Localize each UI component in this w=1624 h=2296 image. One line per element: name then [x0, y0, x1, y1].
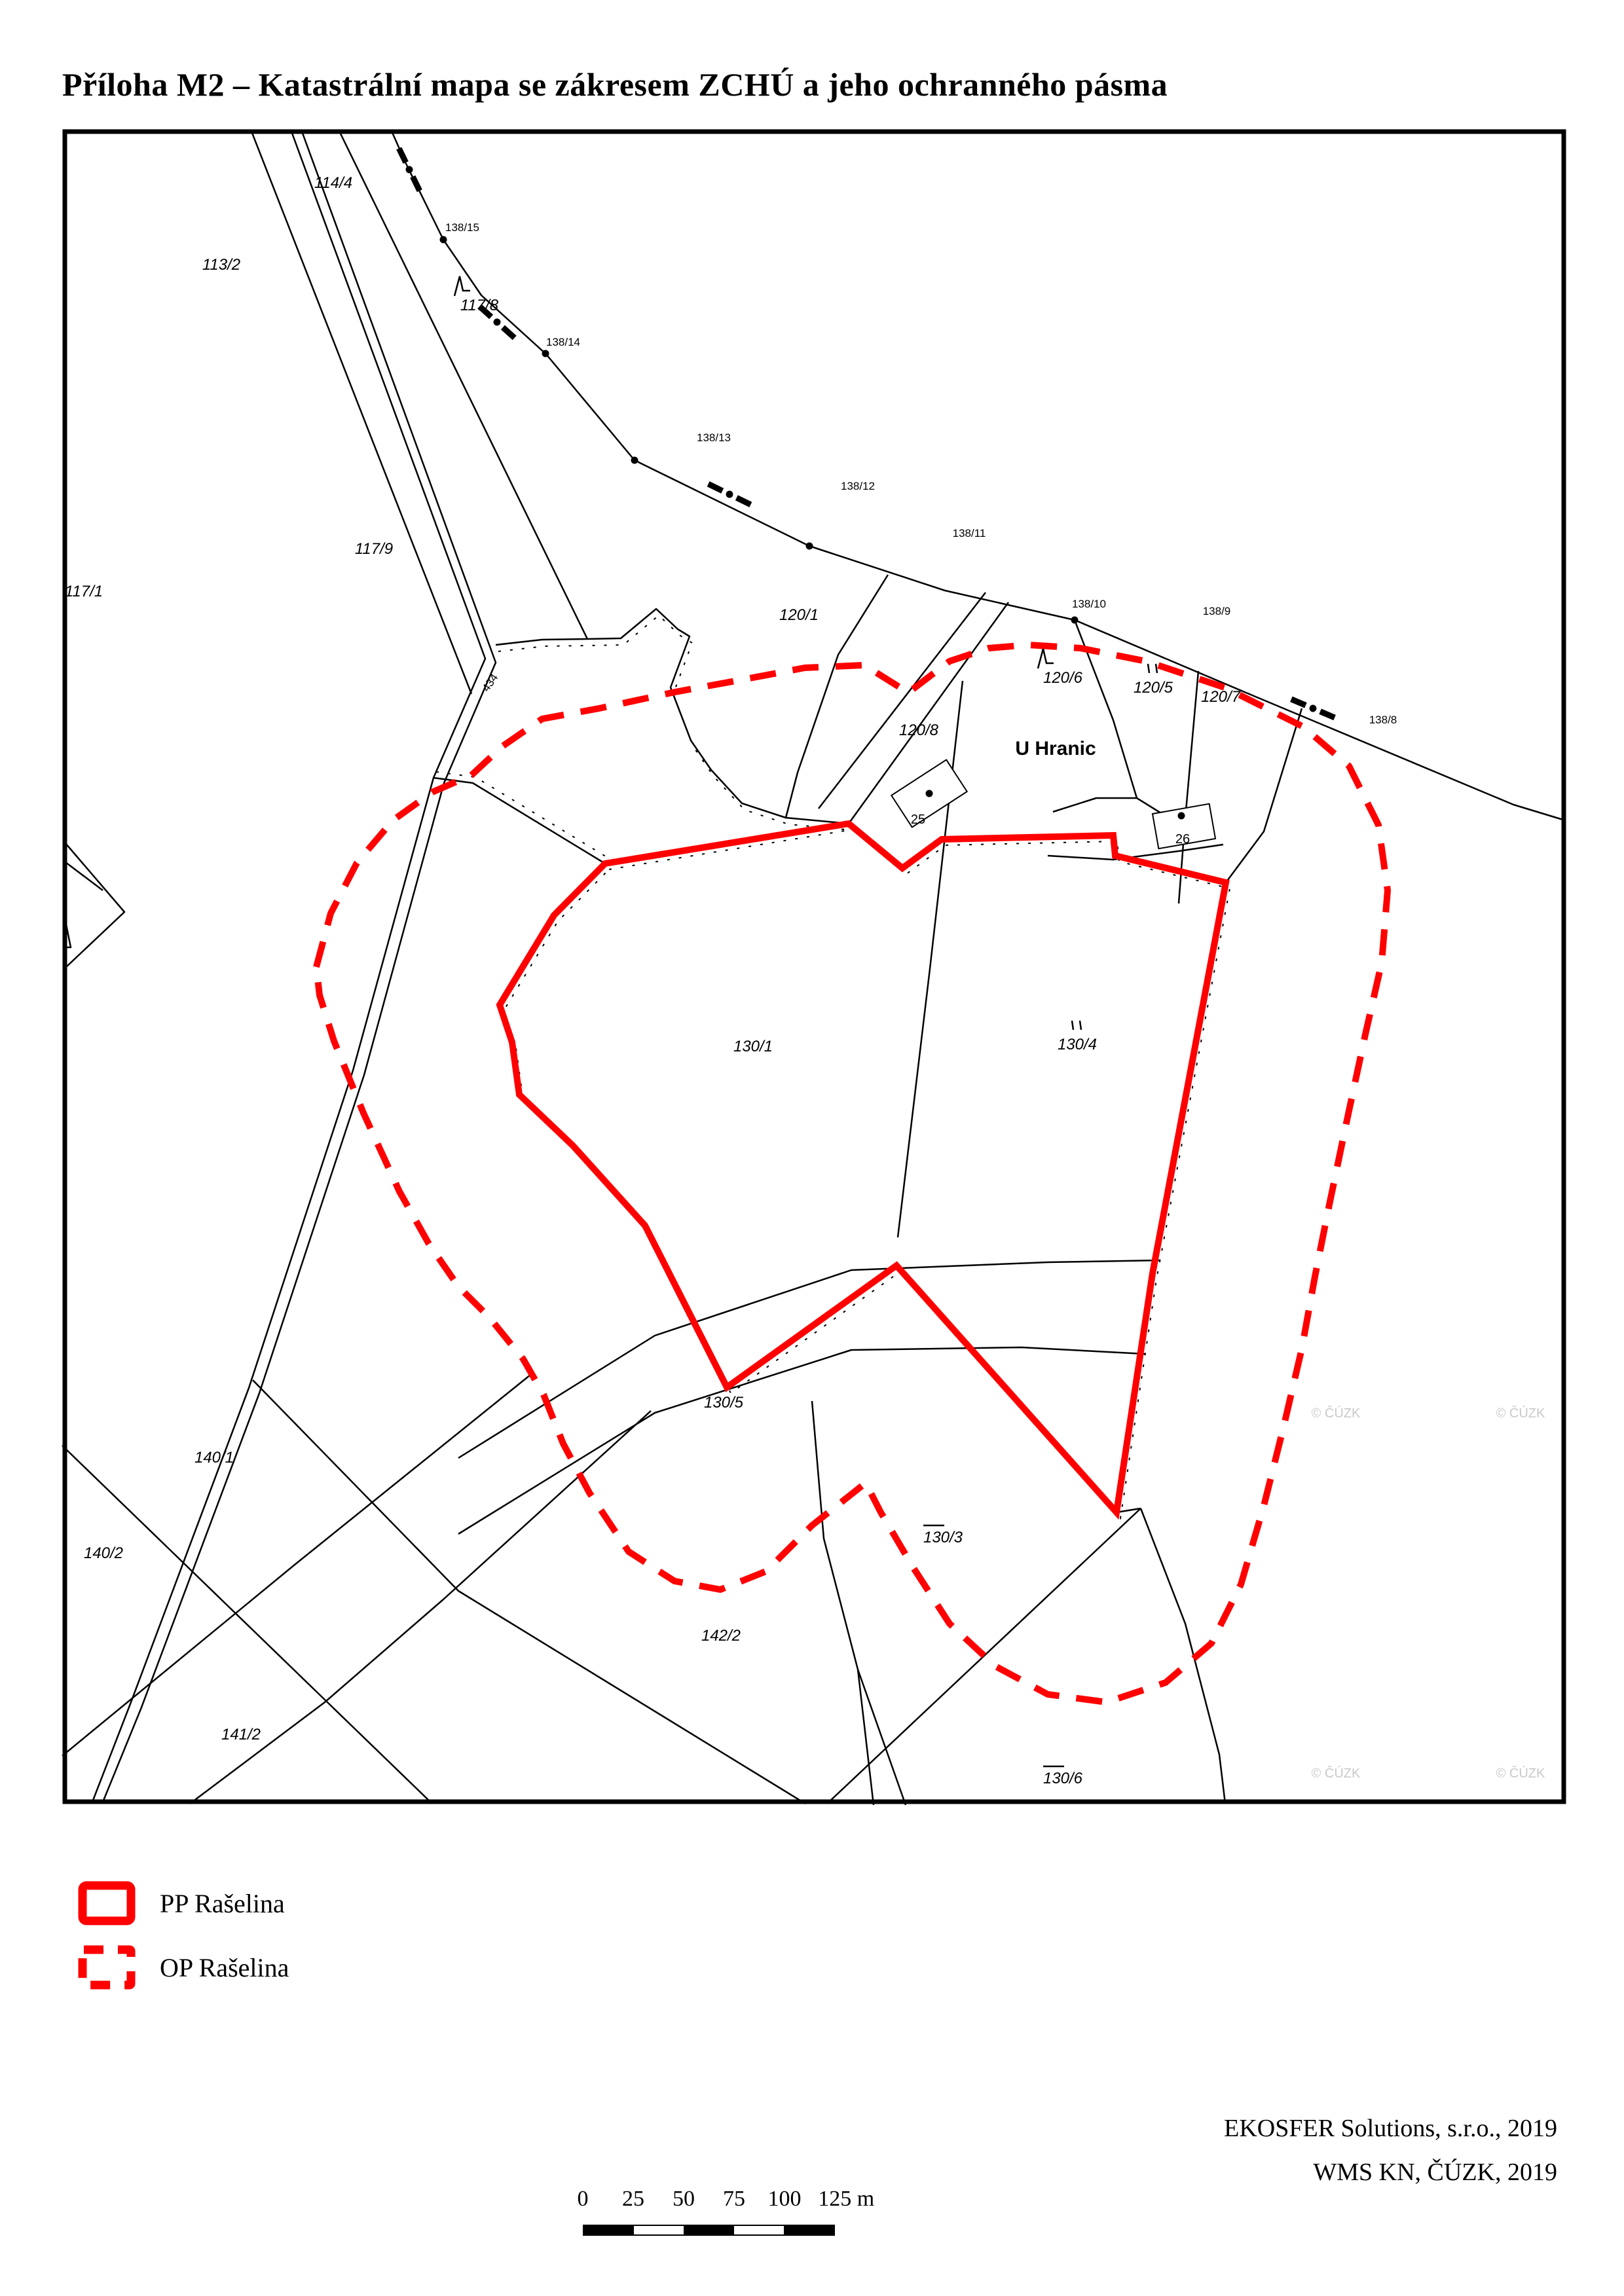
- parcel-number-label: 138/11: [953, 527, 986, 539]
- scale-tick-label: 0: [578, 2187, 589, 2212]
- boundary-point: [725, 490, 735, 500]
- parcel-line: [1226, 708, 1302, 883]
- boundary-point: [440, 236, 447, 244]
- op-swatch-icon: [77, 1944, 136, 1990]
- map-decorations: [396, 147, 1336, 1766]
- pp-raselina-boundary: [500, 824, 1226, 1512]
- scale-tick-label: 75: [723, 2187, 745, 2212]
- boundary-point: [492, 317, 502, 327]
- peak-symbol-icon: [454, 276, 470, 296]
- culvert-bar: [413, 177, 420, 191]
- parcel-number-label: 130/4: [1058, 1036, 1097, 1053]
- parcel-line: [65, 862, 103, 890]
- scale-segment: [734, 2226, 784, 2234]
- parcel-line: [458, 1260, 1160, 1458]
- op-raselina-boundary: [316, 645, 1388, 1702]
- parcel-line: [827, 1508, 1141, 1804]
- double-tick-icon: [1072, 1021, 1081, 1030]
- scale-segment: [684, 2226, 734, 2234]
- boundary-zigzag-dotted: [498, 615, 851, 830]
- parcel-line: [434, 778, 605, 864]
- scale-segment: [784, 2226, 834, 2234]
- legend-item-op: OP Rašelina: [77, 1944, 289, 1990]
- parcel-line: [339, 130, 587, 639]
- boundary-point: [631, 457, 638, 464]
- boundary-point: [542, 350, 549, 357]
- parcel-number-label: 138/13: [697, 431, 731, 444]
- parcel-number-label: 117/1: [65, 583, 103, 600]
- parcel-number-label: 120/8: [899, 721, 939, 739]
- parcel-lines: [62, 130, 1565, 1805]
- map-frame: [65, 132, 1564, 1802]
- culvert-bar: [399, 149, 406, 163]
- cuzk-watermark: © ČÚZK: [1496, 1406, 1545, 1421]
- parcel-number-label: 138/14: [546, 336, 580, 348]
- parcel-number-label: 130/3: [923, 1529, 963, 1546]
- culvert-bar: [1320, 712, 1335, 718]
- culvert-bar: [503, 327, 515, 338]
- scale-tick-label: 125 m: [818, 2187, 874, 2212]
- legend-item-pp: PP Rašelina: [77, 1880, 289, 1926]
- credits-line2: WMS KN, ČÚZK, 2019: [1224, 2151, 1557, 2195]
- map-labels: 113/2114/4117/1117/8117/9120/1120/8120/6…: [65, 174, 1545, 1787]
- scale-segment: [584, 2226, 634, 2234]
- cuzk-watermark: © ČÚZK: [1312, 1406, 1361, 1421]
- scale-tick-label: 25: [622, 2187, 644, 2212]
- parcel-number-label: 138/12: [841, 480, 875, 492]
- parcel-line: [190, 1411, 651, 1804]
- cuzk-watermark: © ČÚZK: [1312, 1766, 1361, 1781]
- peak-symbol-icon: [1038, 649, 1054, 668]
- parcel-line-dotted: [436, 772, 608, 858]
- legend: PP Rašelina OP Rašelina: [77, 1880, 289, 2009]
- boundary-point: [1178, 812, 1185, 820]
- culvert-symbol-icon: [707, 481, 752, 507]
- parcel-number-label: 130/6: [1043, 1770, 1083, 1787]
- road-line-east: [102, 130, 496, 1804]
- parcel-number-label: 117/9: [355, 540, 393, 558]
- scale-bar-segments: [583, 2225, 835, 2236]
- parcel-number-label: 120/6: [1043, 669, 1083, 687]
- scale-tick-label: 100: [768, 2187, 802, 2212]
- culvert-bar: [709, 484, 723, 491]
- parcel-number-label: 140/2: [84, 1544, 123, 1562]
- parcel-line: [898, 681, 963, 1237]
- boundary-point: [806, 543, 813, 550]
- parcel-number-label: 138/9: [1203, 605, 1231, 617]
- parcel-line: [1141, 1508, 1225, 1804]
- parcel-number-label: 113/2: [202, 256, 240, 274]
- parcel-line: [1053, 798, 1170, 818]
- scale-tick-label: 50: [673, 2187, 695, 2212]
- parcel-number-label: 114/4: [314, 174, 352, 192]
- parcel-number-label: 120/7: [1201, 688, 1242, 706]
- road-line-west: [92, 130, 485, 1804]
- parcel-number-label: 130/1: [733, 1038, 773, 1055]
- parcel-number-label: 120/5: [1134, 679, 1173, 697]
- double-tick-icon: [1148, 664, 1157, 673]
- scale-segment: [634, 2226, 684, 2234]
- parcel-number-label: 141/2: [221, 1726, 261, 1743]
- credits-line1: EKOSFER Solutions, s.r.o., 2019: [1224, 2107, 1557, 2151]
- place-name-label: U Hranic: [1015, 738, 1096, 759]
- parcel-number-label: 138/15: [445, 221, 479, 234]
- legend-label: PP Rašelina: [160, 1888, 285, 1919]
- culvert-bar: [737, 498, 751, 505]
- boundary-point: [1071, 617, 1079, 624]
- cuzk-watermark: © ČÚZK: [1496, 1766, 1545, 1781]
- culvert-bar: [1291, 699, 1306, 705]
- parcel-line: [62, 1375, 530, 1756]
- culvert-symbol-icon: [1290, 696, 1337, 721]
- culvert-symbol-icon: [396, 147, 422, 192]
- boundary-point: [405, 165, 415, 175]
- boundary-point: [1308, 704, 1318, 713]
- legend-label: OP Rašelina: [160, 1952, 289, 1983]
- boundary-point: [926, 790, 933, 797]
- credits: EKOSFER Solutions, s.r.o., 2019 WMS KN, …: [1224, 2107, 1557, 2194]
- parcel-number-label: 142/2: [701, 1627, 741, 1645]
- pp-swatch-icon: [77, 1880, 136, 1926]
- parcel-line: [65, 843, 124, 968]
- parcel-number-label: 138/8: [1369, 714, 1397, 726]
- parcel-number-label: 117/8: [460, 297, 499, 314]
- pp-boundary-dotted: [504, 829, 1230, 1518]
- building-number-label: 26: [1175, 832, 1190, 847]
- parcel-number-label: 138/10: [1072, 598, 1106, 610]
- parcel-number-label: 120/1: [779, 606, 819, 624]
- parcel-line: [812, 1401, 906, 1805]
- parcel-number-label: 140/1: [194, 1449, 234, 1467]
- document-page: Příloha M2 – Katastrální mapa se zákrese…: [0, 0, 1624, 2296]
- parcel-number-label: 130/5: [704, 1394, 744, 1412]
- building-number-label: 25: [911, 812, 925, 827]
- parcel-line: [251, 130, 471, 694]
